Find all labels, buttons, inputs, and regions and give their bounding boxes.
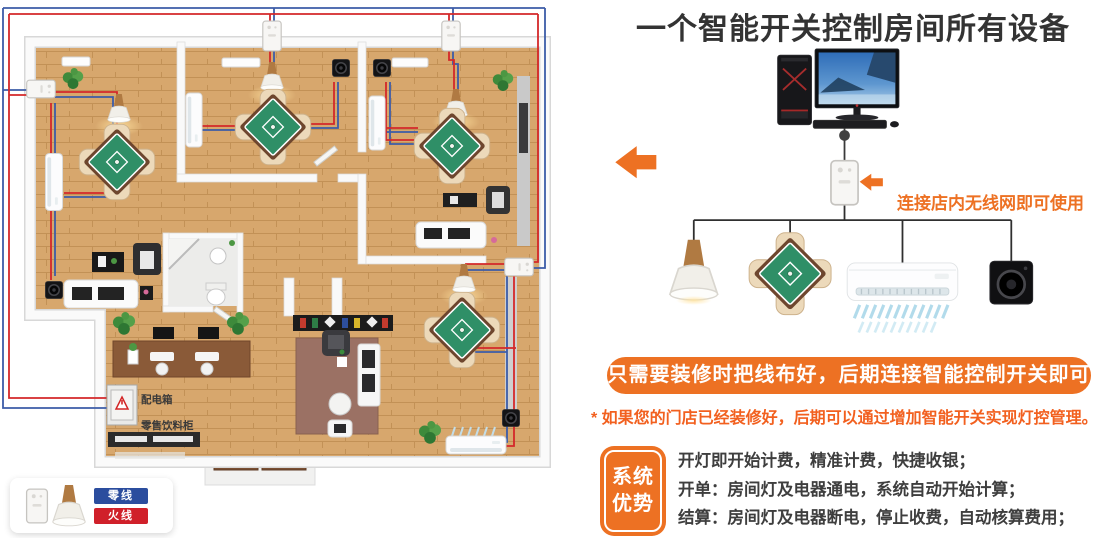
pendant-lamp-large-icon [670,240,717,305]
air-conditioner-large-icon [847,263,958,333]
distribution-box [107,385,137,425]
air-conditioner-icon [369,96,385,150]
speaker-icon [502,409,519,426]
floorplan: 配电箱 零售饮料柜 [0,0,560,500]
to-floorplan-arrow-icon [615,146,656,178]
legend-neutral-wire: 零线 [94,488,148,504]
footnote: * 如果您的门店已经装修好，后期可以通过增加智能开关实现灯控管理。 [591,404,1096,428]
wall-tv [519,103,528,153]
system-advantage-badge: 系统 优势 [600,446,666,536]
wifi-note-arrow-icon [860,174,883,191]
bathroom [169,239,237,306]
legend-icons [22,483,86,529]
pc-to-switch-connector [839,128,850,161]
legend-live-wire: 火线 [94,508,148,524]
air-conditioner-icon [186,93,202,147]
speaker-icon [373,59,390,76]
wifi-note: 连接店内无线网即可使用 [897,189,1084,214]
smart-switch-icon [263,21,281,51]
page: 配电箱 零售饮料柜 [0,0,1096,538]
drink-cabinet-label: 零售饮料柜 [140,419,194,432]
subwoofer-large-icon [990,261,1033,304]
mahjong-table-large-icon [749,233,831,315]
benefit-line-1: 开灯即开始计费，精准计费，快捷收银； [678,447,1096,476]
desktop-computer-icon [778,49,899,128]
smart-switch-icon [505,258,534,276]
smart-switch-icon [27,489,48,523]
legend: 零线 火线 [10,478,173,533]
pendant-lamp-icon [53,485,85,526]
badge-line1: 系统 [612,464,654,491]
air-conditioner-icon [45,154,62,211]
benefit-line-2: 开单：房间灯及电器通电，系统自动开始计算； [678,476,1096,505]
benefit-list: 开灯即开始计费，精准计费，快捷收银； 开单：房间灯及电器通电，系统自动开始计算；… [678,447,1096,533]
air-conditioner-icon [446,436,506,454]
benefit-line-3: 结算：房间灯及电器断电，停止收费，自动核算费用； [678,504,1096,533]
speaker-icon [45,281,62,298]
smart-switch-icon [27,80,56,98]
page-title: 一个智能开关控制房间所有设备 [610,4,1096,48]
setup-banner: 只需要装修时把线布好，后期连接智能控制开关即可 [607,357,1091,394]
speaker-icon [332,59,349,76]
smart-switch-large-icon [831,161,858,205]
connector-dot [839,130,850,141]
badge-line2: 优势 [612,491,654,518]
distribution-box-label: 配电箱 [141,393,173,406]
smart-switch-icon [442,21,460,51]
feature-wall [517,76,530,246]
